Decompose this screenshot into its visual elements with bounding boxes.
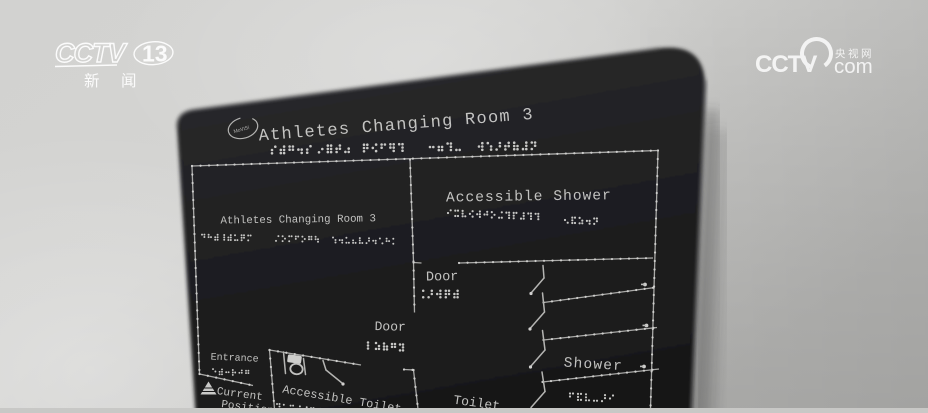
- svg-text:Door: Door: [374, 319, 406, 335]
- svg-text:13: 13: [142, 41, 168, 67]
- svg-text:CCTV: CCTV: [55, 38, 127, 68]
- svg-text:CCTV: CCTV: [755, 51, 817, 78]
- svg-text:Door: Door: [426, 270, 459, 286]
- svg-text:新: 新: [84, 72, 100, 90]
- svg-text:Entrance: Entrance: [210, 353, 258, 366]
- svg-text:Athletes Changing Room 3: Athletes Changing Room 3: [220, 213, 376, 227]
- svg-text:com: com: [834, 55, 873, 78]
- svg-text:Accessible Shower: Accessible Shower: [446, 188, 612, 206]
- svg-text:闻: 闻: [121, 72, 137, 90]
